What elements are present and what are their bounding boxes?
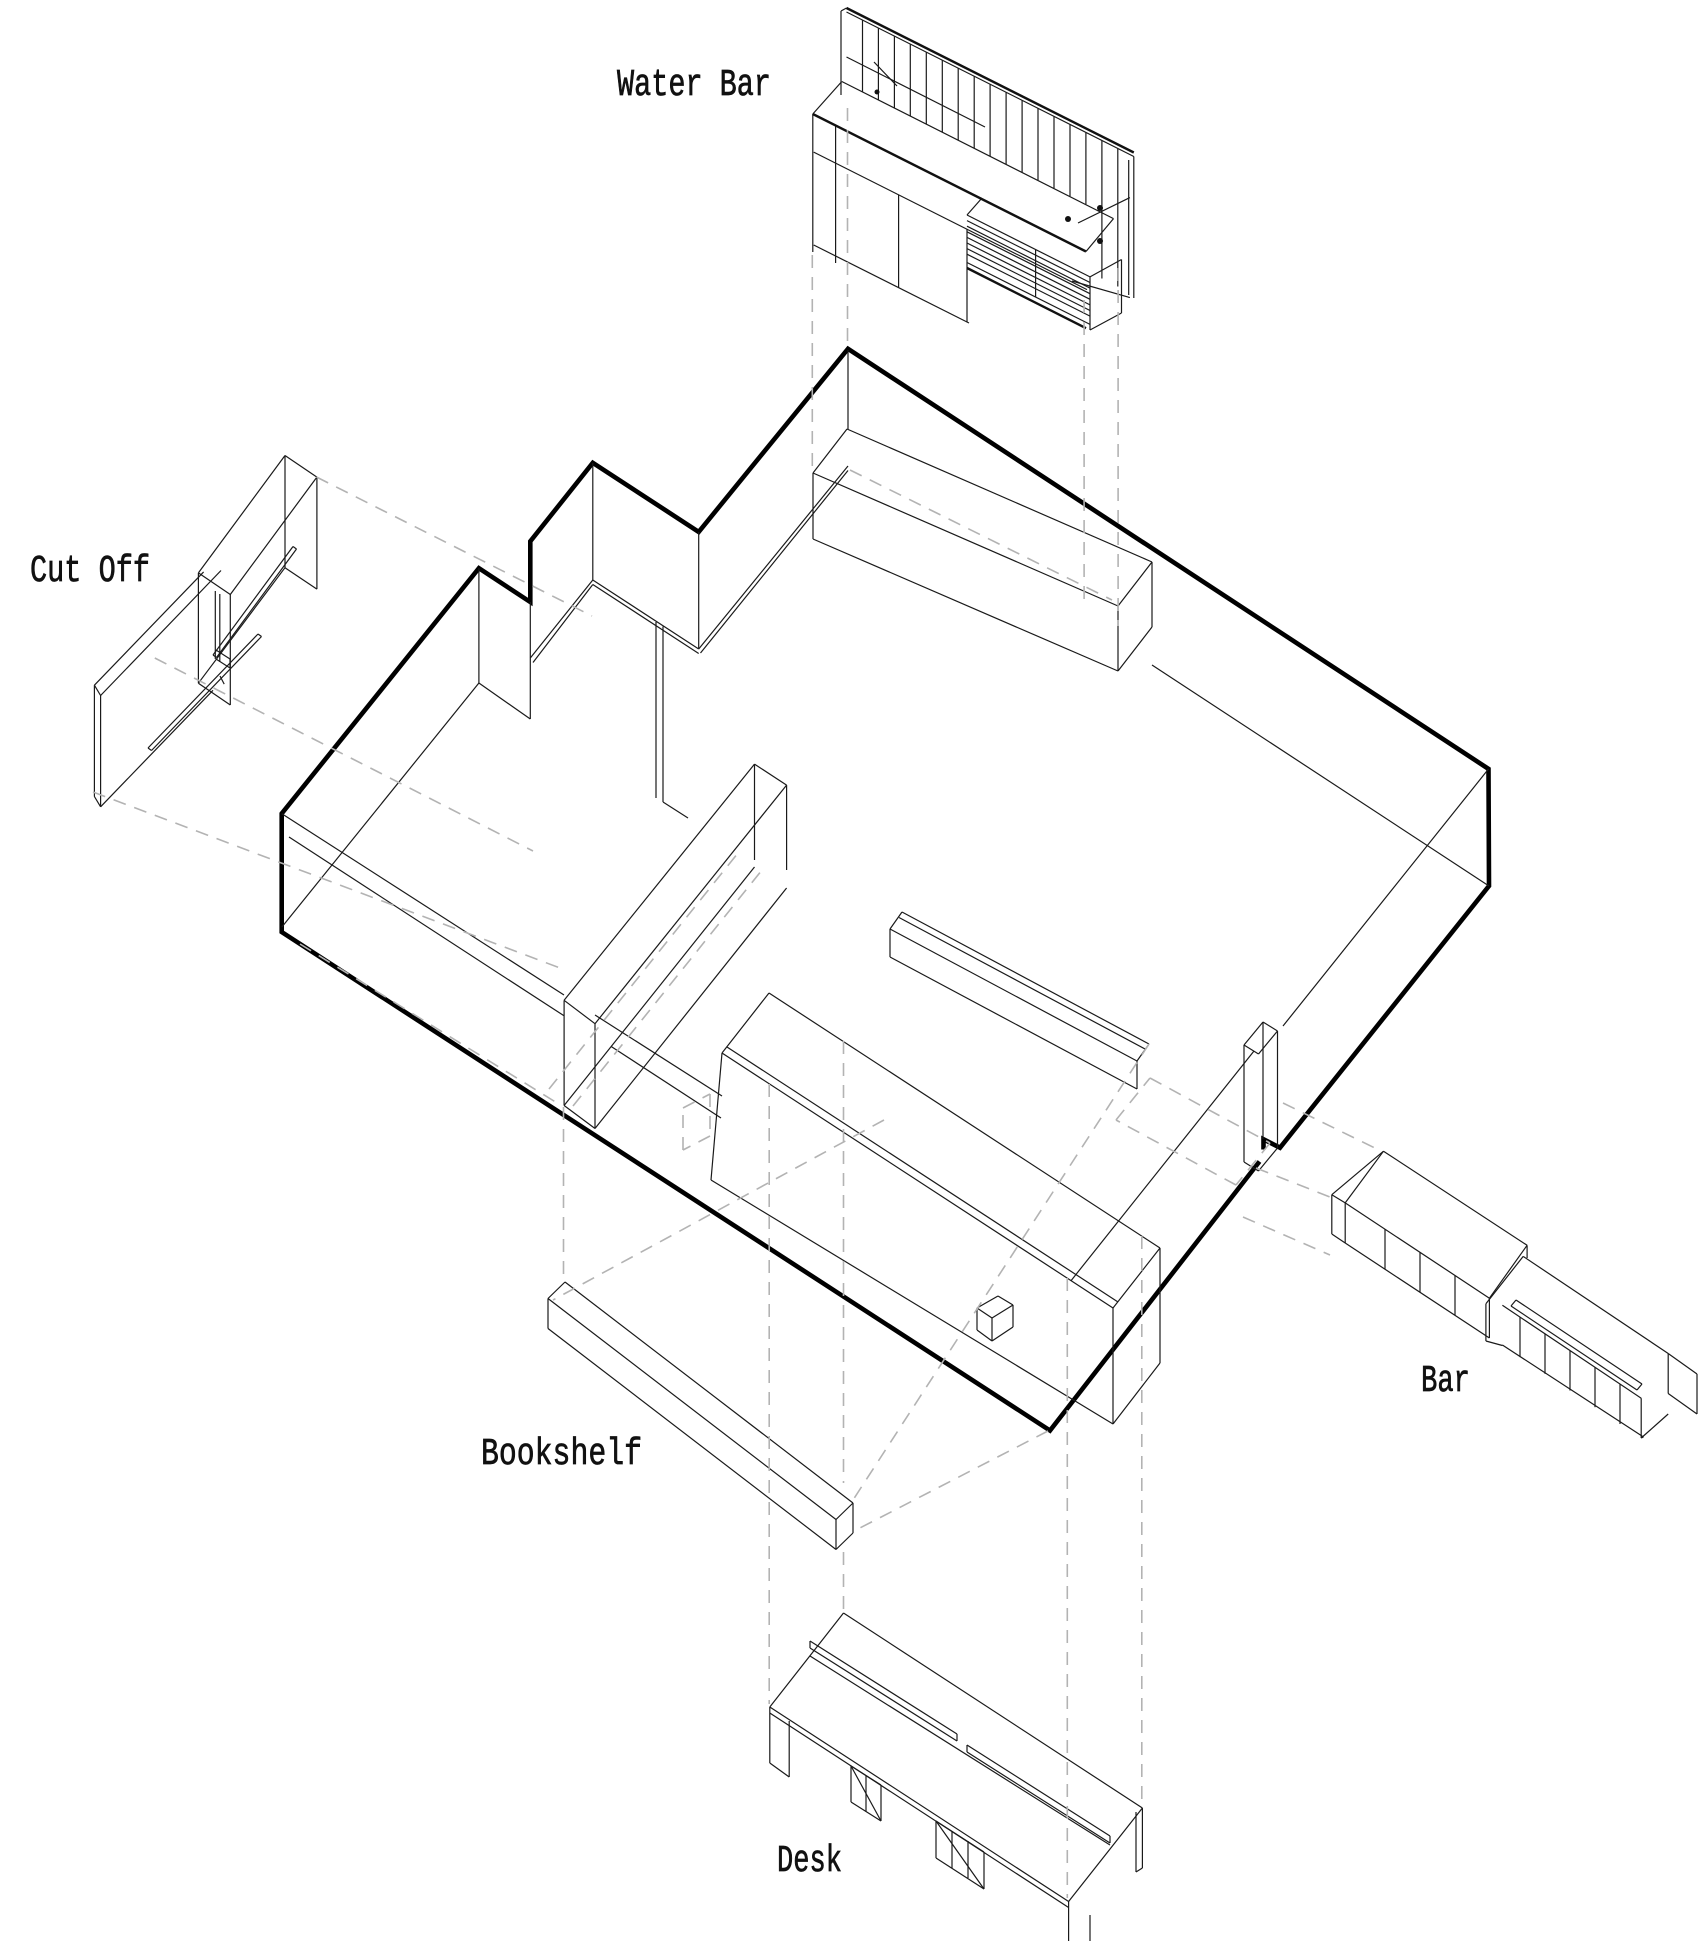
- svg-text:Bookshelf: Bookshelf: [481, 1433, 642, 1476]
- svg-text:Bar: Bar: [1421, 1360, 1470, 1403]
- svg-text:Water Bar: Water Bar: [617, 64, 771, 107]
- svg-text:Cut Off: Cut Off: [30, 550, 150, 593]
- svg-text:Desk: Desk: [777, 1840, 842, 1883]
